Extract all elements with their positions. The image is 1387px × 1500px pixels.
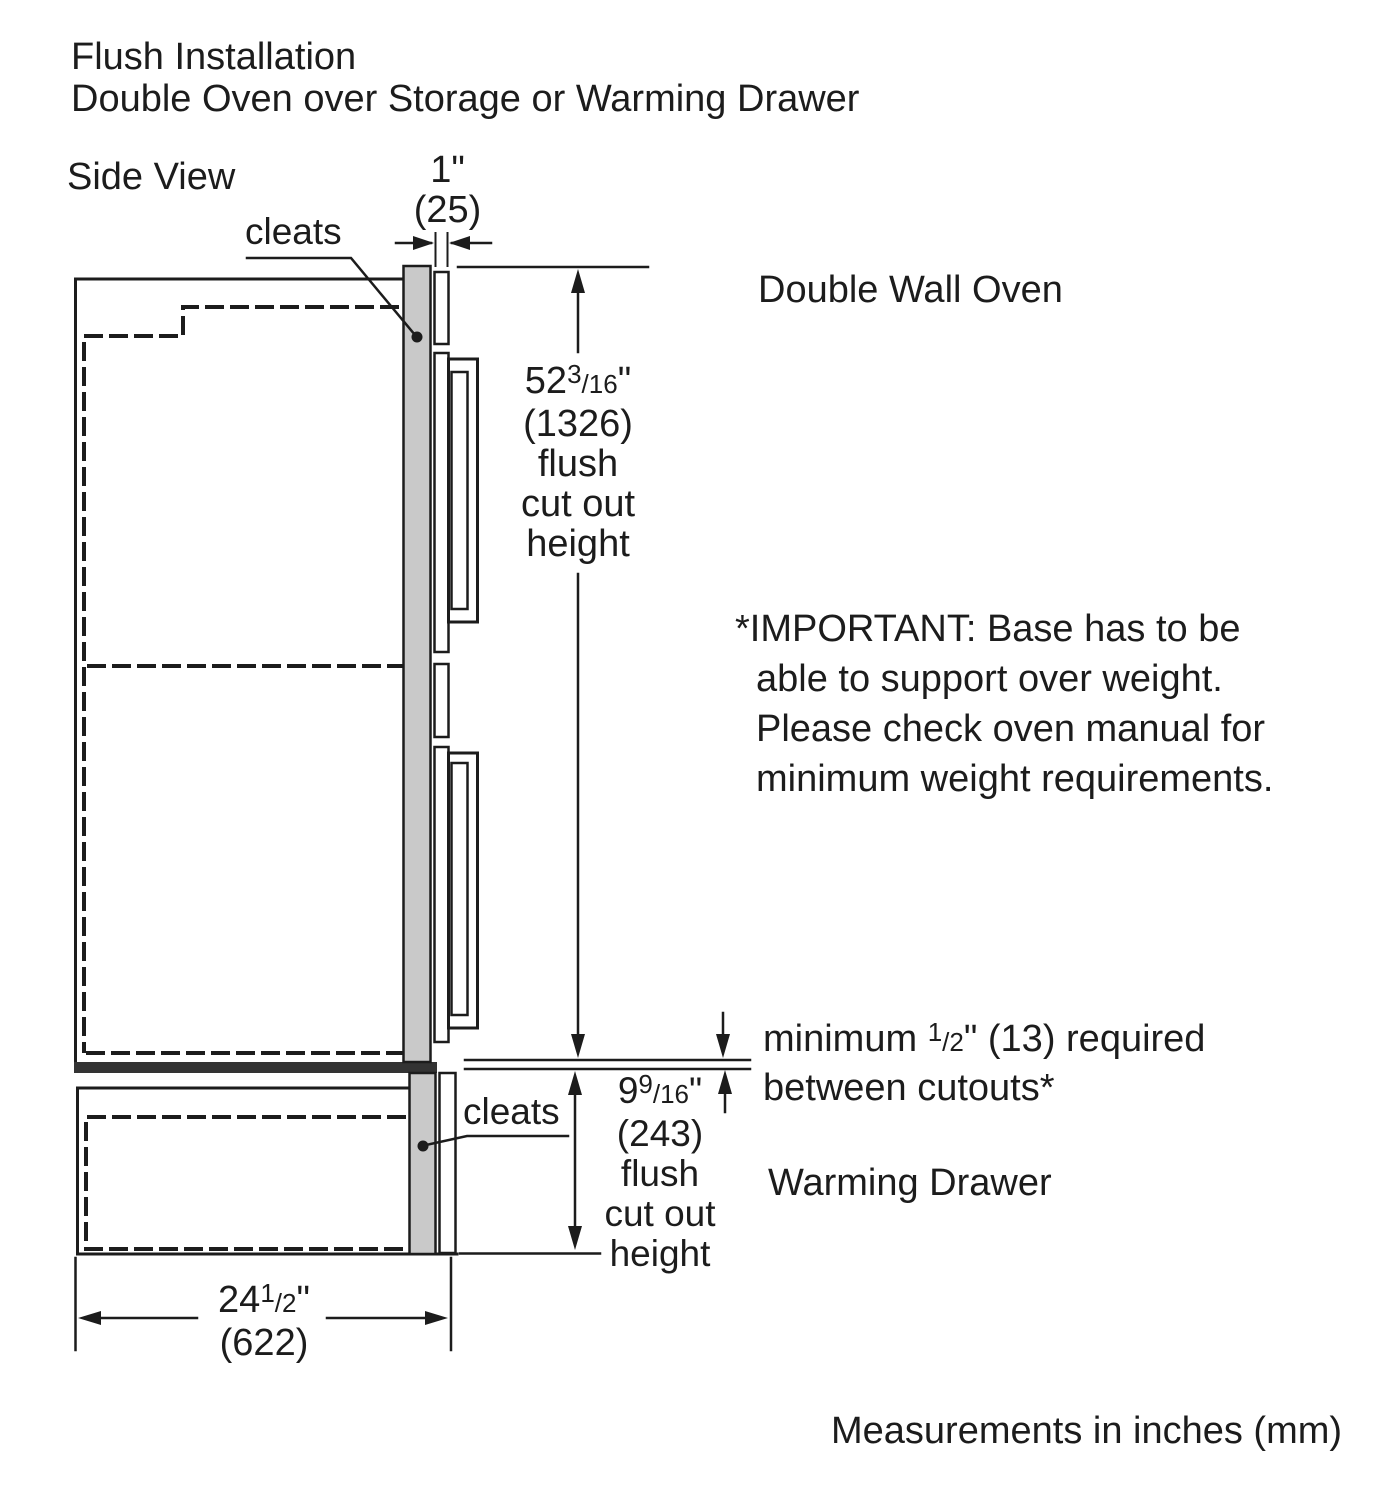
arrowhead-right	[425, 1311, 448, 1325]
measurements-note: Measurements in inches (mm)	[831, 1410, 1342, 1452]
dim-unit: "	[618, 360, 632, 402]
title-line-1: Flush Installation	[71, 36, 859, 78]
cleats-label-bottom: cleats	[463, 1091, 560, 1133]
arrowhead-right	[413, 236, 434, 250]
min-gap-line-2: between cutouts*	[763, 1065, 1205, 1111]
cabinet-solid-edge	[76, 279, 404, 1062]
oven-cutout-dimension-text: 523/16" (1326) flush cut out height	[497, 361, 659, 564]
trim-strip	[435, 747, 449, 1042]
cleat-thickness-inches: 1"	[390, 150, 505, 190]
dim-denominator: /2	[275, 1288, 297, 1318]
divider-panel	[74, 1062, 437, 1073]
oven-doors	[449, 359, 478, 1028]
arrowhead-down	[571, 1034, 585, 1058]
dim-denominator: /16	[653, 1079, 689, 1109]
dim-whole: 24	[218, 1279, 260, 1321]
drawer-cutout-mm: (243)	[580, 1114, 740, 1154]
dim-numerator: 9	[638, 1069, 652, 1099]
important-note-line: Please check oven manual for	[756, 704, 1273, 754]
cleat-dimension-graphics	[396, 233, 491, 266]
caption-line: cut out	[497, 484, 659, 524]
oven-cutout-dashed-line	[84, 307, 397, 1051]
dim-unit: "	[296, 1279, 310, 1321]
caption-line: cut out	[580, 1194, 740, 1234]
warming-drawer-label: Warming Drawer	[768, 1162, 1052, 1204]
caption-line: flush	[497, 444, 659, 484]
arrowhead-left	[78, 1311, 101, 1325]
oven-cutout-mm: (1326)	[497, 404, 659, 444]
cleat-thickness-dimension: 1" (25)	[390, 150, 505, 230]
depth-dimension-text: 241/2" (622)	[184, 1280, 344, 1363]
leader-dot	[412, 332, 423, 343]
important-note: *IMPORTANT: Base has to be able to suppo…	[735, 604, 1273, 804]
title-line-2: Double Oven over Storage or Warming Draw…	[71, 78, 859, 120]
trim-strip	[435, 353, 449, 652]
upper-cleat-bar	[404, 266, 431, 1062]
depth-value: 241/2"	[184, 1280, 344, 1323]
arrowhead-down	[716, 1034, 730, 1058]
upper-cabinet-outline	[76, 279, 405, 1062]
page-title: Flush Installation Double Oven over Stor…	[71, 36, 859, 120]
lower-oven-door-inner	[452, 763, 468, 1015]
caption-line: height	[580, 1234, 740, 1274]
min-gap-post: " (13) required	[964, 1018, 1206, 1060]
min-gap-pre: minimum	[763, 1018, 928, 1060]
view-label: Side View	[67, 156, 235, 198]
dim-numerator: 1	[260, 1278, 274, 1308]
drawer-cleat-bar	[410, 1073, 436, 1254]
dim-denominator: /16	[582, 369, 618, 399]
dim-unit: "	[689, 1070, 702, 1111]
trim-strip	[435, 272, 449, 344]
min-gap-numerator: 1	[928, 1017, 942, 1047]
drawer-cutout-value: 99/16"	[580, 1071, 740, 1114]
important-note-line: able to support over weight.	[756, 654, 1273, 704]
leader-dot	[418, 1141, 429, 1152]
drawer-cutout-dashed-line	[86, 1117, 404, 1248]
dim-whole: 9	[618, 1070, 639, 1111]
depth-mm: (622)	[184, 1323, 344, 1363]
drawer-solid-edge	[78, 1088, 458, 1254]
arrowhead-left	[449, 236, 470, 250]
important-note-line: minimum weight requirements.	[756, 754, 1273, 804]
caption-line: height	[497, 524, 659, 564]
oven-cutout-value: 523/16"	[497, 361, 659, 404]
upper-oven-door-inner	[452, 372, 468, 609]
cleat-thickness-mm: (25)	[390, 190, 505, 230]
important-note-line: *IMPORTANT: Base has to be	[735, 604, 1273, 654]
double-wall-oven-label: Double Wall Oven	[758, 269, 1063, 311]
leader-line-top	[247, 258, 415, 335]
drawer-cabinet-outline	[78, 1088, 458, 1254]
dim-numerator: 3	[567, 359, 581, 389]
min-gap-note: minimum 1/2" (13) required between cutou…	[763, 1016, 1205, 1111]
trim-strip	[435, 664, 449, 737]
min-gap-denominator: /2	[942, 1027, 964, 1057]
installation-diagram-page: Flush Installation Double Oven over Stor…	[0, 0, 1387, 1500]
caption-line: flush	[580, 1154, 740, 1194]
cleats-label-top: cleats	[245, 211, 342, 253]
drawer-cutout-dimension-text: 99/16" (243) flush cut out height	[580, 1071, 740, 1274]
dim-whole: 52	[525, 360, 567, 402]
drawer-front-panel	[440, 1073, 456, 1253]
min-gap-line-1: minimum 1/2" (13) required	[763, 1016, 1205, 1065]
